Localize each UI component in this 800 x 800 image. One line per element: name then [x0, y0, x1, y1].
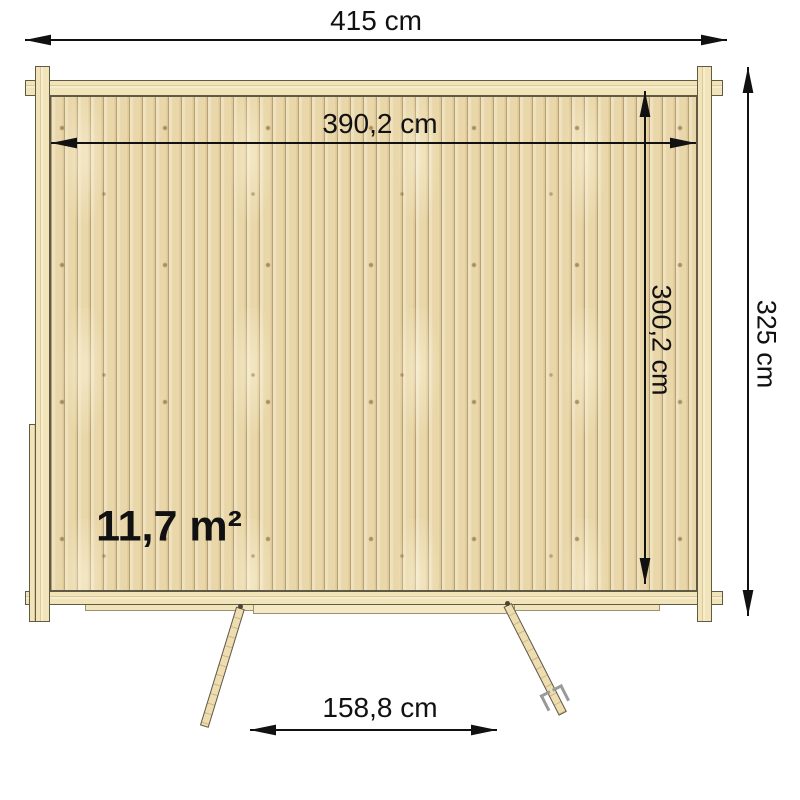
- arrow-door-opening: [250, 725, 497, 736]
- floor-plan-canvas: 415 cm 390,2 cm 300,2 cm 325 cm 158,8 cm…: [0, 0, 800, 800]
- inner-width-label: 390,2 cm: [322, 108, 437, 140]
- outer-depth-label: 325 cm: [751, 300, 782, 389]
- area-label: 11,7 m²: [96, 503, 242, 552]
- outer-width-label: 415 cm: [330, 5, 422, 37]
- door-opening-label: 158,8 cm: [322, 692, 437, 724]
- inner-depth-label: 300,2 cm: [646, 284, 677, 395]
